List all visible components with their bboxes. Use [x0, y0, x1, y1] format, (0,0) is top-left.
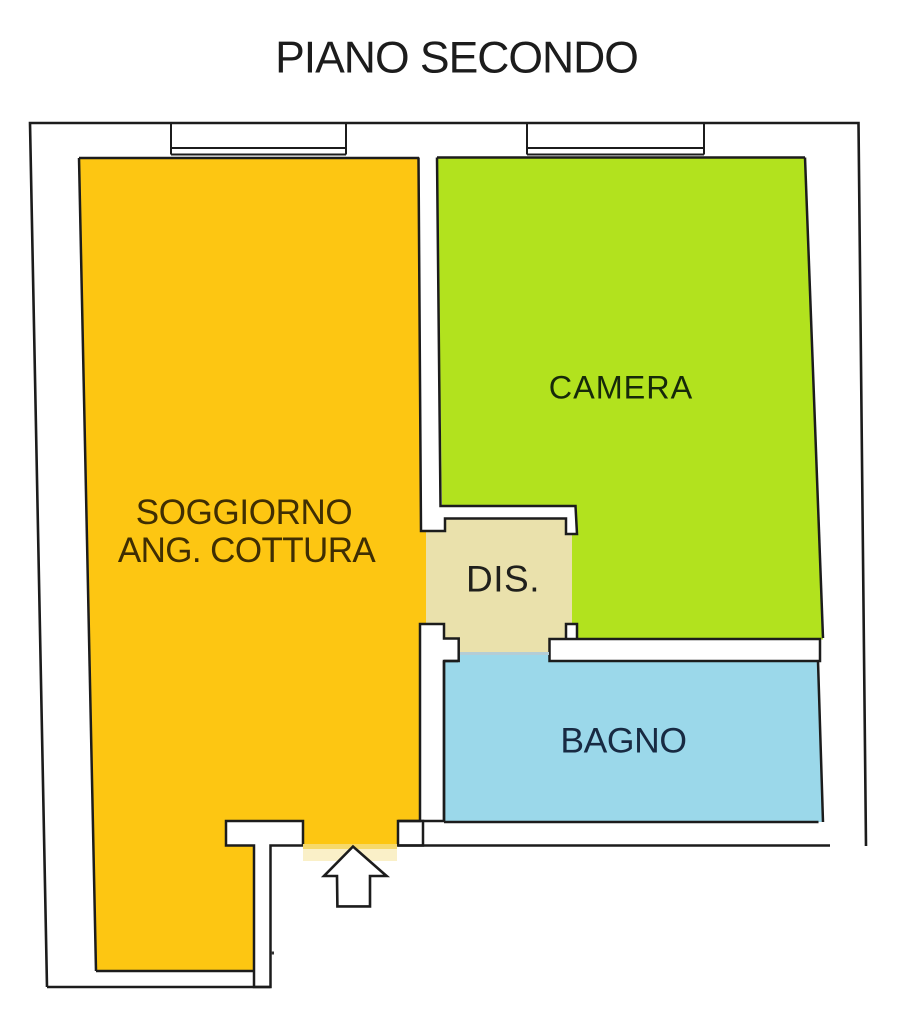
svg-text:PIANO SECONDO: PIANO SECONDO [275, 34, 638, 83]
svg-text:ANG. COTTURA: ANG. COTTURA [118, 531, 377, 570]
svg-text:DIS.: DIS. [466, 559, 540, 600]
svg-text:CAMERA: CAMERA [549, 370, 694, 406]
svg-text:BAGNO: BAGNO [560, 721, 686, 761]
svg-text:SOGGIORNO: SOGGIORNO [136, 493, 353, 532]
